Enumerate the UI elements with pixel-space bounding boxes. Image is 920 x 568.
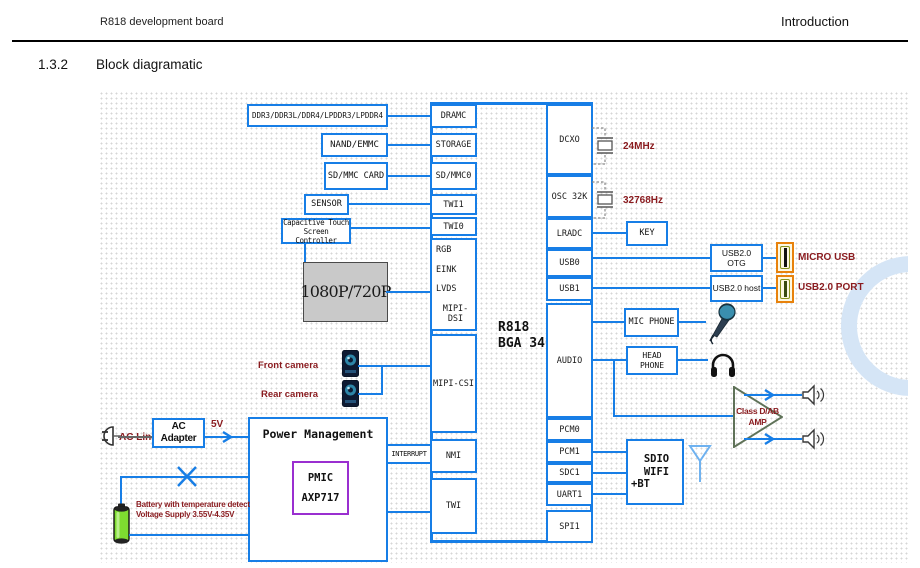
section-number: 1.3.2 bbox=[38, 57, 68, 72]
wire-rear-camera bbox=[358, 393, 383, 395]
wire-audio-headphone bbox=[591, 359, 626, 361]
sensor-label: SENSOR bbox=[311, 199, 342, 209]
wire-otg-connector bbox=[761, 257, 776, 259]
wire-headphone-icon bbox=[676, 359, 708, 361]
pmic-label-2: AXP717 bbox=[302, 492, 340, 504]
pin-nmi: NMI bbox=[430, 439, 477, 473]
chip-title-line1: R818 bbox=[498, 320, 553, 336]
crystal-24mhz-icon bbox=[591, 124, 619, 172]
pin-uart1-label: UART1 bbox=[557, 490, 583, 500]
usb-host-label: USB2.0 host bbox=[713, 283, 761, 293]
wire-sensor-twi1 bbox=[347, 203, 432, 205]
battery-icon bbox=[112, 503, 131, 546]
mic-phone-box: MIC PHONE bbox=[624, 308, 679, 337]
pin-twi1: TWI1 bbox=[430, 194, 477, 215]
sensor-box: SENSOR bbox=[304, 194, 349, 215]
wire-front-camera bbox=[358, 365, 432, 367]
pin-sdc1-label: SDC1 bbox=[559, 468, 579, 478]
interrupt-label: INTERRUPT bbox=[391, 450, 426, 458]
wire-touch-display bbox=[304, 243, 306, 262]
pin-sdmmc0: SD/MMC0 bbox=[430, 162, 477, 190]
5v-label: 5V bbox=[211, 419, 223, 430]
amp-label: Class D/AB AMP bbox=[734, 406, 781, 427]
wire-sd-sdmmc0 bbox=[386, 175, 432, 177]
pin-twi1-label: TWI1 bbox=[443, 200, 463, 210]
touch-controller-label-1: Capacitive Touch bbox=[283, 218, 349, 227]
arrow-icon bbox=[220, 430, 234, 444]
antenna-icon bbox=[688, 444, 712, 484]
usb-connector-icon bbox=[776, 242, 794, 273]
header-right: Introduction bbox=[781, 14, 849, 29]
header-left: R818 development board bbox=[100, 16, 224, 28]
pin-twi0-label: TWI0 bbox=[443, 222, 463, 232]
wire-plug-adapter bbox=[118, 436, 154, 438]
pin-lradc-label: LRADC bbox=[557, 229, 583, 239]
wire-camera-join bbox=[381, 365, 383, 395]
wire-host-connector bbox=[761, 287, 776, 289]
crystal-24mhz-label: 24MHz bbox=[623, 141, 655, 152]
usb2-port-label: USB2.0 PORT bbox=[798, 282, 864, 293]
pin-mipidsi-label: MIPI-DSI bbox=[436, 304, 475, 324]
pin-lradc: LRADC bbox=[546, 218, 593, 249]
pin-dramc-label: DRAMC bbox=[441, 111, 467, 121]
header-rule bbox=[12, 40, 908, 42]
ac-adapter-box: AC Adapter bbox=[152, 418, 205, 448]
chip-title-line2: BGA 346 bbox=[498, 336, 553, 352]
wire-touch-twi0 bbox=[349, 227, 432, 229]
x-mark-icon bbox=[176, 465, 198, 488]
ddr-memory-label: DDR3/DDR3L/DDR4/LPDDR3/LPDDR4 bbox=[252, 111, 383, 120]
wire-battery-up bbox=[120, 476, 122, 506]
pin-usb0: USB0 bbox=[546, 249, 593, 277]
sd-card-label: SD/MMC CARD bbox=[328, 171, 384, 181]
display-panel-box: 1080P/720P bbox=[303, 262, 388, 322]
pin-twi: TWI bbox=[430, 478, 477, 534]
usb-otg-box: USB2.0 OTG bbox=[710, 244, 763, 272]
wire-display-chip bbox=[386, 291, 432, 293]
pin-osc32k: OSC 32K bbox=[546, 175, 593, 218]
pin-audio: AUDIO bbox=[546, 303, 593, 418]
pin-twi-label: TWI bbox=[446, 501, 461, 511]
pin-usb0-label: USB0 bbox=[559, 258, 579, 268]
micro-usb-label: MICRO USB bbox=[798, 252, 855, 263]
nand-emmc-box: NAND/EMMC bbox=[321, 133, 388, 157]
pin-dramc: DRAMC bbox=[430, 104, 477, 128]
pin-pcm0: PCM0 bbox=[546, 418, 593, 441]
pin-eink-label: EINK bbox=[436, 265, 456, 275]
key-label: KEY bbox=[639, 228, 654, 238]
wire-mic-icon bbox=[677, 321, 706, 323]
pin-mipicsi-label: MIPI-CSI bbox=[433, 379, 474, 389]
wire-amp-down bbox=[613, 359, 615, 417]
pin-usb1-label: USB1 bbox=[559, 284, 579, 294]
wire-amp-in bbox=[613, 415, 734, 417]
speaker-icon bbox=[801, 384, 828, 406]
pin-osc32k-label: OSC 32K bbox=[552, 192, 588, 202]
pmic-label-1: PMIC bbox=[308, 472, 333, 484]
wire-pm-twi bbox=[386, 511, 432, 513]
wire-audio-mic bbox=[591, 321, 624, 323]
display-panel-label: 1080P/720P bbox=[300, 282, 390, 301]
arrow-icon bbox=[762, 432, 776, 446]
battery-label-1: Battery with temperature detect bbox=[136, 500, 250, 509]
sdio-wifi-box: SDIO WIFI +BT bbox=[626, 439, 684, 505]
front-camera-label: Front camera bbox=[258, 360, 318, 371]
rear-camera-icon bbox=[342, 380, 359, 407]
pin-uart1: UART1 bbox=[546, 483, 593, 506]
ddr-memory-box: DDR3/DDR3L/DDR4/LPDDR3/LPDDR4 bbox=[247, 104, 388, 127]
pin-spi1-label: SPI1 bbox=[559, 522, 579, 532]
pin-sdc1: SDC1 bbox=[546, 463, 593, 483]
nand-emmc-label: NAND/EMMC bbox=[330, 140, 379, 151]
ac-adapter-label: AC Adapter bbox=[154, 421, 203, 445]
wire-pcm1-sdio bbox=[591, 451, 626, 453]
wire-sdc1-sdio bbox=[591, 472, 626, 474]
pin-display-group: RGB EINK LVDS MIPI-DSI bbox=[430, 238, 477, 331]
battery-label-2: Voltage Supply 3.55V-4.35V bbox=[136, 510, 234, 519]
usb-connector-icon bbox=[776, 275, 794, 303]
rear-camera-label: Rear camera bbox=[261, 389, 318, 400]
sd-card-box: SD/MMC CARD bbox=[324, 162, 388, 190]
wire-uart1-sdio bbox=[591, 493, 626, 495]
wire-lradc-key bbox=[591, 232, 626, 234]
pin-sdmmc0-label: SD/MMC0 bbox=[436, 171, 472, 181]
microphone-icon bbox=[706, 302, 738, 348]
amp-label-line2: AMP bbox=[734, 417, 781, 428]
amp-label-line1: Class D/AB bbox=[734, 406, 781, 417]
head-phone-label: HEAD PHONE bbox=[628, 351, 676, 370]
watermark-circle bbox=[841, 256, 908, 396]
crystal-32k-icon bbox=[591, 178, 619, 226]
crystal-32k-label: 32768Hz bbox=[623, 195, 663, 206]
interrupt-box: INTERRUPT bbox=[386, 444, 432, 464]
pin-rgb-label: RGB bbox=[436, 245, 451, 255]
pin-mipicsi: MIPI-CSI bbox=[430, 334, 477, 433]
key-box: KEY bbox=[626, 221, 668, 246]
pin-storage-label: STORAGE bbox=[436, 140, 472, 150]
pin-pcm1-label: PCM1 bbox=[559, 447, 579, 457]
arrow-icon bbox=[762, 388, 776, 402]
pin-dcxo-label: DCXO bbox=[559, 135, 579, 145]
wire-battery-bottom bbox=[129, 534, 248, 536]
wire-usb0-otg bbox=[591, 257, 710, 259]
pin-usb1: USB1 bbox=[546, 277, 593, 301]
pin-dcxo: DCXO bbox=[546, 104, 593, 175]
pin-pcm0-label: PCM0 bbox=[559, 425, 579, 435]
head-phone-box: HEAD PHONE bbox=[626, 346, 678, 375]
mic-phone-label: MIC PHONE bbox=[628, 317, 674, 327]
pin-nmi-label: NMI bbox=[446, 451, 461, 461]
speaker-icon bbox=[801, 428, 828, 450]
pin-twi0: TWI0 bbox=[430, 217, 477, 236]
touch-controller-box: Capacitive Touch Screen Controller bbox=[281, 218, 351, 244]
touch-controller-label-2: Screen Controller bbox=[283, 227, 349, 245]
pin-audio-label: AUDIO bbox=[557, 356, 583, 366]
pmic-box: PMIC AXP717 bbox=[292, 461, 349, 515]
headphone-icon bbox=[710, 349, 736, 379]
chip-title: R818 BGA 346 bbox=[498, 320, 553, 353]
pin-storage: STORAGE bbox=[430, 133, 477, 157]
power-management-title: Power Management bbox=[252, 427, 384, 441]
front-camera-icon bbox=[342, 350, 359, 377]
sdio-wifi-label-1: SDIO WIFI bbox=[631, 453, 682, 478]
sdio-wifi-label-2: +BT bbox=[631, 478, 650, 491]
usb-otg-label: USB2.0 OTG bbox=[712, 248, 761, 268]
section-title: Block diagramatic bbox=[96, 57, 203, 72]
wire-nand-storage bbox=[386, 144, 432, 146]
wire-usb1-host bbox=[591, 287, 710, 289]
pin-spi1: SPI1 bbox=[546, 510, 593, 543]
usb-host-box: USB2.0 host bbox=[710, 275, 763, 302]
pin-pcm1: PCM1 bbox=[546, 441, 593, 463]
pin-lvds-label: LVDS bbox=[436, 284, 456, 294]
wire-ddr-dramc bbox=[386, 115, 432, 117]
